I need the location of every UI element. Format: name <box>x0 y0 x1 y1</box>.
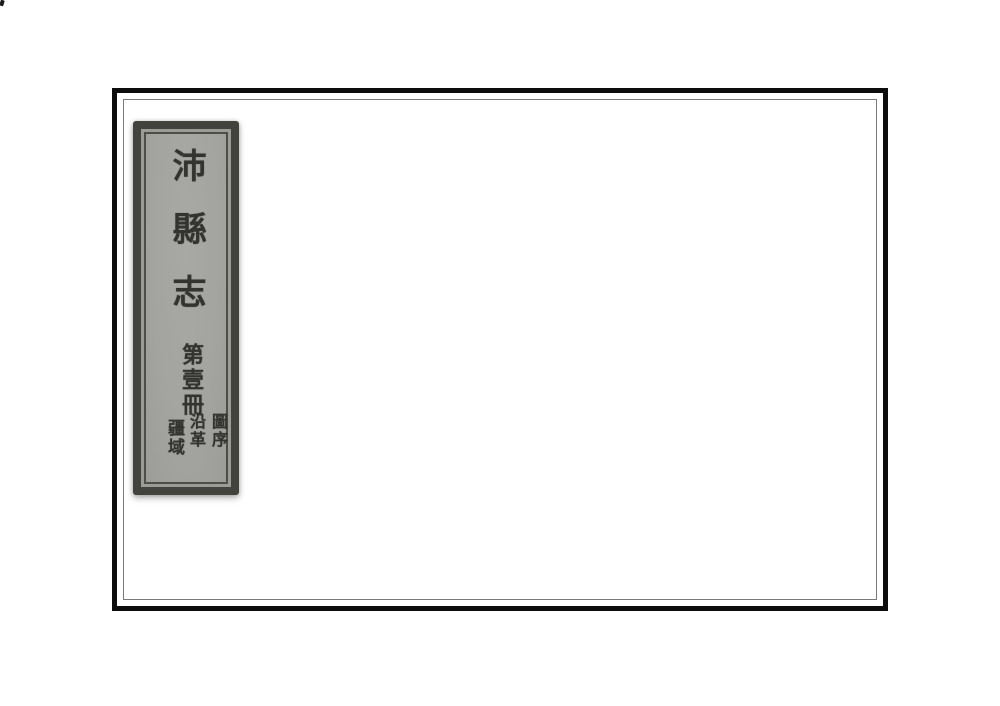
scanned-page: 沛縣志 第壹冊 圖序 沿革 疆域 <box>0 0 1000 706</box>
contents-item: 沿革 <box>188 413 204 457</box>
scan-artifact-speck <box>0 0 5 6</box>
book-title: 沛縣志 <box>169 148 203 337</box>
volume-number: 第壹冊 <box>179 343 201 418</box>
contents-item: 圖序 <box>210 413 226 457</box>
label-paper: 沛縣志 第壹冊 圖序 沿革 疆域 <box>144 132 228 484</box>
spine-title-label: 沛縣志 第壹冊 圖序 沿革 疆域 <box>133 121 239 495</box>
contents-list: 圖序 沿革 疆域 <box>165 413 226 457</box>
book-cover: 沛縣志 第壹冊 圖序 沿革 疆域 <box>112 88 888 611</box>
label-outer-frame: 沛縣志 第壹冊 圖序 沿革 疆域 <box>141 129 231 487</box>
contents-item: 疆域 <box>165 419 182 457</box>
